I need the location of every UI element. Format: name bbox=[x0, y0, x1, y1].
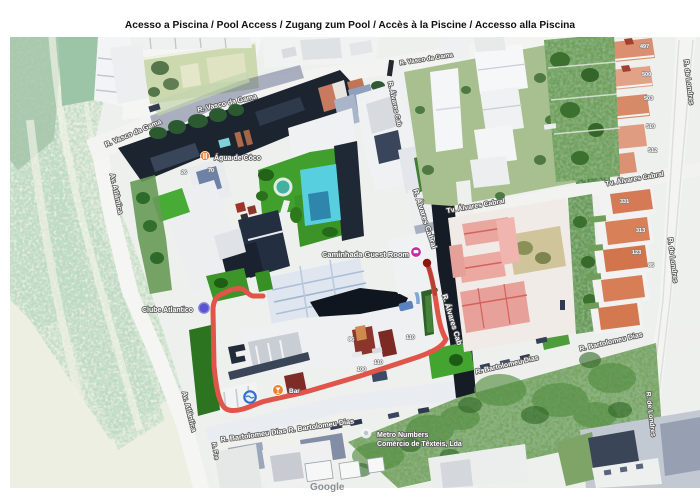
svg-text:313: 313 bbox=[636, 228, 645, 234]
svg-text:110: 110 bbox=[374, 360, 383, 366]
svg-text:70: 70 bbox=[208, 168, 214, 174]
svg-text:503: 503 bbox=[644, 96, 653, 102]
svg-text:123: 123 bbox=[632, 250, 641, 256]
svg-text:85: 85 bbox=[648, 263, 654, 269]
svg-text:510: 510 bbox=[646, 124, 655, 130]
svg-text:Caminhada Guest Room: Caminhada Guest Room bbox=[322, 250, 409, 259]
svg-text:512: 512 bbox=[648, 148, 657, 154]
svg-text:497: 497 bbox=[640, 44, 649, 50]
svg-text:Clube Atlantico: Clube Atlantico bbox=[142, 307, 193, 314]
svg-text:Google: Google bbox=[310, 482, 345, 493]
svg-text:Acesso a Piscina / Pool Access: Acesso a Piscina / Pool Access / Zugang … bbox=[125, 20, 575, 31]
svg-text:26: 26 bbox=[181, 170, 187, 176]
svg-text:100: 100 bbox=[357, 367, 366, 373]
svg-text:Bar: Bar bbox=[289, 388, 300, 395]
svg-text:Metro Numbers: Metro Numbers bbox=[377, 432, 428, 439]
svg-text:86: 86 bbox=[348, 337, 354, 343]
svg-text:Comércio de Têxteis, Lda: Comércio de Têxteis, Lda bbox=[377, 441, 462, 448]
svg-text:110: 110 bbox=[406, 335, 415, 341]
svg-text:331: 331 bbox=[620, 199, 629, 205]
svg-text:Água de Côco: Água de Côco bbox=[214, 153, 261, 162]
svg-text:500: 500 bbox=[642, 72, 651, 78]
